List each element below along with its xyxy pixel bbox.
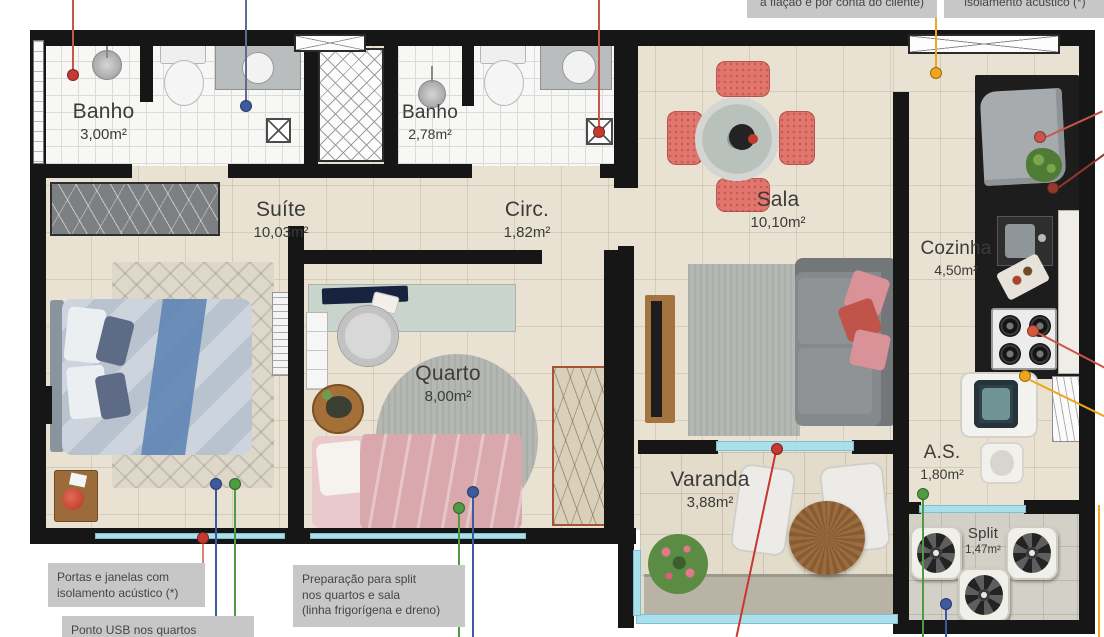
wall	[893, 92, 909, 628]
wall	[638, 440, 718, 454]
wall	[304, 44, 318, 164]
callout-dot-red	[1034, 131, 1046, 143]
shower-stall	[318, 48, 384, 162]
room-name: Suíte	[238, 198, 324, 222]
wall	[614, 30, 638, 188]
wall	[893, 502, 921, 514]
bookshelf	[306, 312, 328, 390]
room-name: Banho	[56, 100, 151, 124]
shower-drain-icon	[266, 118, 291, 143]
room-name: Cozinha	[906, 238, 1006, 260]
window-icon	[908, 34, 1060, 54]
suite-wardrobe	[50, 182, 220, 236]
window-icon	[294, 34, 366, 52]
wall	[316, 164, 472, 178]
callout-dot-red	[771, 443, 783, 455]
table-lamp	[62, 488, 84, 510]
callout-dot-red	[197, 532, 209, 544]
burner-icon	[999, 343, 1021, 365]
room-area: 1,80m²	[906, 466, 978, 482]
herbs	[1026, 148, 1062, 182]
wall	[618, 246, 634, 628]
wall	[140, 36, 153, 102]
callout-dot-blue	[940, 598, 952, 610]
office-chair	[338, 306, 398, 366]
room-name: Sala	[732, 188, 824, 212]
quarto-wardrobe	[552, 366, 610, 526]
wall	[852, 440, 895, 454]
callout-dot-darkred	[1047, 182, 1059, 194]
glass-railing	[633, 550, 641, 616]
room-label-cozinha: Cozinha 4,50m²	[906, 238, 1006, 278]
note-split-prep: Preparação para split nos quartos e sala…	[293, 565, 465, 627]
flower-plant	[648, 534, 708, 594]
dining-chair	[779, 111, 815, 165]
round-table	[789, 501, 865, 575]
laundry-tub-basin	[990, 450, 1014, 476]
room-label-as: A.S. 1,80m²	[906, 442, 978, 482]
note-doors-windows: Portas e janelas com isolamento acústico…	[48, 563, 205, 607]
room-area: 1,82m²	[482, 224, 572, 241]
wall	[1024, 500, 1079, 514]
callout-line-blue	[945, 609, 947, 637]
callout-dot-green	[917, 488, 929, 500]
burner-icon	[1029, 343, 1051, 365]
callout-dot-red	[1027, 325, 1039, 337]
callout-dot-blue	[240, 100, 252, 112]
fan-icon	[1013, 533, 1051, 573]
wall	[288, 226, 304, 528]
callout-line-green	[922, 499, 924, 637]
sala-rug	[688, 264, 800, 436]
callout-dot-blue	[210, 478, 222, 490]
wall	[228, 164, 316, 178]
tv	[651, 301, 662, 417]
quarto-blanket	[360, 434, 522, 529]
room-name: Varanda	[658, 468, 762, 492]
pillow	[849, 329, 892, 372]
note-acoustic-top: isolamento acústico (*)	[944, 0, 1104, 18]
callout-dot-yellow	[930, 67, 942, 79]
callout-dot-green	[229, 478, 241, 490]
callout-line-yellow	[1098, 505, 1100, 637]
room-label-banho2: Banho 2,78m²	[390, 102, 470, 142]
fan-icon	[965, 575, 1003, 615]
room-label-banho1: Banho 3,00m²	[56, 100, 151, 143]
room-label-suite: Suíte 10,03m²	[238, 198, 324, 241]
callout-dot-blue	[467, 486, 479, 498]
room-area: 4,50m²	[906, 262, 1006, 278]
room-label-quarto: Quarto 8,00m²	[400, 362, 496, 405]
note-usb: Ponto USB nos quartos	[62, 616, 254, 637]
burner-icon	[999, 315, 1021, 337]
callout-line-blue	[245, 0, 247, 101]
plant-leaf	[322, 390, 332, 400]
shower-stem	[431, 66, 433, 82]
note-wiring: a fiação é por conta do cliente)	[747, 0, 937, 18]
floor-plan-canvas: Banho 3,00m² Banho 2,78m² Suíte 10,03m² …	[0, 0, 1104, 637]
callout-line-blue	[215, 489, 217, 637]
room-label-varanda: Varanda 3,88m²	[658, 468, 762, 511]
room-name: Banho	[390, 102, 470, 124]
toilet-bowl	[484, 60, 524, 106]
glass-door	[716, 441, 854, 451]
callout-line-salmon	[202, 543, 204, 565]
callout-line-red	[72, 0, 74, 70]
room-name: A.S.	[906, 442, 978, 464]
dining-chair	[716, 61, 770, 97]
washer-glass	[982, 388, 1010, 420]
room-area: 8,00m²	[400, 388, 496, 405]
shower-stem	[106, 44, 108, 58]
callout-dot-green	[453, 502, 465, 514]
room-area: 10,10m²	[732, 214, 824, 231]
callout-dot-red	[67, 69, 79, 81]
callout-line-yellow	[935, 14, 937, 68]
room-area: 3,88m²	[658, 494, 762, 511]
room-label-circ: Circ. 1,82m²	[482, 198, 572, 241]
wall	[304, 250, 542, 264]
faucet	[1038, 234, 1046, 242]
acoustic-window	[310, 533, 526, 539]
callout-line-green	[234, 489, 236, 637]
wall	[30, 386, 52, 424]
sink-basin	[1005, 224, 1035, 258]
room-name: Circ.	[482, 198, 572, 222]
room-area: 1,47m²	[948, 544, 1018, 557]
sink-icon	[562, 50, 596, 84]
wall	[462, 36, 474, 106]
callout-dot-red	[593, 126, 605, 138]
wall	[44, 164, 132, 178]
acoustic-window	[95, 533, 285, 539]
window-icon	[33, 40, 44, 164]
room-label-split: Split 1,47m²	[948, 525, 1018, 557]
room-label-sala: Sala 10,10m²	[732, 188, 824, 231]
split-condenser-unit	[958, 568, 1010, 622]
fruit	[748, 134, 758, 144]
callout-line-red	[598, 0, 600, 127]
room-area: 3,00m²	[56, 126, 151, 143]
room-area: 2,78m²	[390, 126, 470, 142]
room-area: 10,03m²	[238, 224, 324, 241]
glass-partition	[919, 505, 1026, 513]
callout-dot-yellow	[1019, 370, 1031, 382]
room-name: Quarto	[400, 362, 496, 386]
room-name: Split	[948, 525, 1018, 542]
toilet-bowl	[164, 60, 204, 106]
callout-line-blue	[472, 497, 474, 637]
glass-railing	[636, 614, 898, 624]
